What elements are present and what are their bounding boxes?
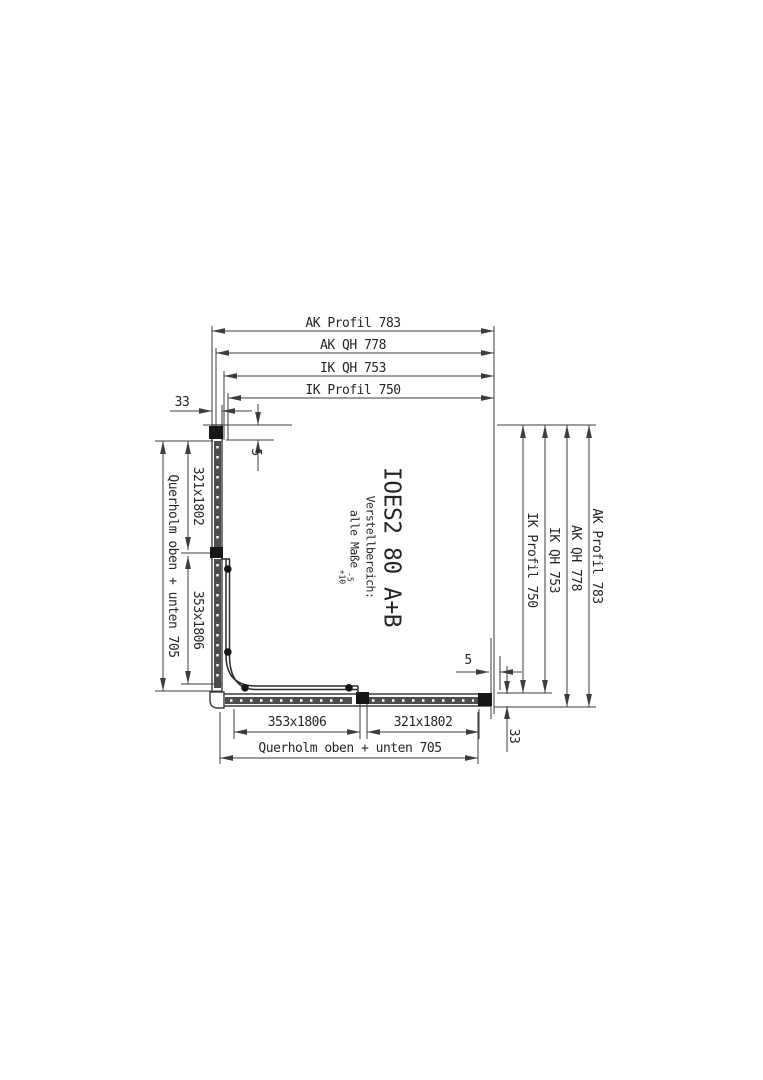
dim-label-ik-profil-top: IK Profil 750 [305, 384, 400, 398]
dim-label-gap-bottom-right: 5 [464, 654, 471, 668]
top-end-cap [209, 426, 223, 439]
door-rollers [224, 565, 353, 691]
product-code: IOES2 80 A+B [378, 432, 404, 662]
dim-label-segment-bottom-right: 321x1802 [394, 716, 453, 730]
corner-foot [210, 692, 224, 708]
left-junction-connector [210, 547, 223, 558]
dim-label-segment-bottom-left: 353x1806 [268, 716, 327, 730]
adjustment-scope-label: alle Maße [347, 510, 361, 568]
dim-label-profile-width-top-left: 33 [175, 396, 190, 410]
dim-label-segment-left-top: 321x1802 [190, 467, 204, 526]
dim-label-ak-profil-right: AK Profil 783 [589, 508, 603, 603]
tolerance-stack: -5+10 [337, 570, 353, 584]
tolerance-plus: +10 [337, 570, 345, 584]
tolerance-minus: -5 [345, 570, 353, 584]
dim-label-ik-qh-right: IK QH 753 [546, 527, 560, 593]
adjustment-range-label: Verstellbereich: [362, 432, 376, 662]
right-end-cap [478, 693, 492, 706]
product-label-block: IOES2 80 A+B Verstellbereich: alle Maße-… [337, 432, 404, 662]
dim-label-gap-top-left: 5 [248, 448, 262, 455]
dim-label-querholm-left: Querholm oben + unten 705 [165, 474, 179, 657]
dim-label-ik-profil-right: IK Profil 750 [524, 512, 538, 607]
dim-label-ak-profil-top: AK Profil 783 [305, 317, 400, 331]
dim-label-ak-qh-top: AK QH 778 [320, 339, 386, 353]
dim-label-profile-width-bottom-right: 33 [506, 729, 520, 744]
adjustment-scope-line: alle Maße-5+10 [337, 432, 360, 662]
dim-label-ik-qh-top: IK QH 753 [320, 362, 386, 376]
technical-drawing-page: AK Profil 783 AK QH 778 IK QH 753 IK Pro… [0, 0, 763, 1080]
dim-label-ak-qh-right: AK QH 778 [568, 525, 582, 591]
dim-label-segment-left-bottom: 353x1806 [190, 591, 204, 650]
dim-label-querholm-bottom: Querholm oben + unten 705 [258, 742, 441, 756]
